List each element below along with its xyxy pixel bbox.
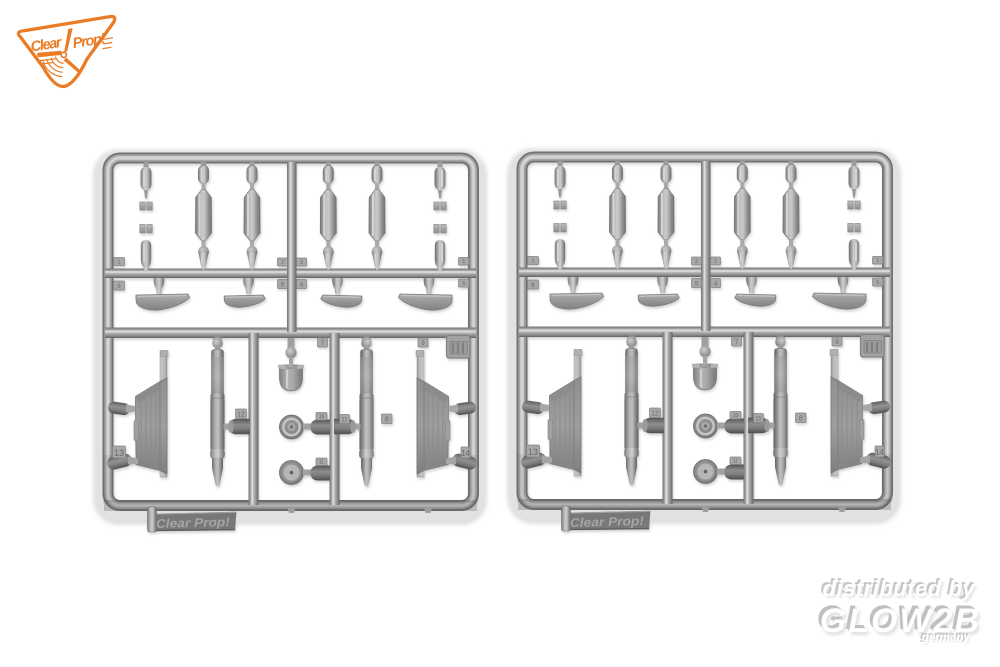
svg-text:germany: germany bbox=[921, 633, 971, 645]
svg-text:11: 11 bbox=[319, 460, 324, 466]
svg-text:14: 14 bbox=[461, 449, 470, 458]
svg-text:3: 3 bbox=[714, 259, 717, 265]
svg-text:distributed by: distributed by bbox=[823, 576, 977, 601]
svg-text:11: 11 bbox=[341, 418, 348, 424]
svg-text:10: 10 bbox=[733, 413, 739, 419]
svg-text:12: 12 bbox=[651, 411, 659, 418]
svg-text:Clear Prop!: Clear Prop! bbox=[570, 514, 644, 530]
svg-text:13: 13 bbox=[528, 447, 538, 457]
svg-text:14: 14 bbox=[875, 448, 884, 457]
svg-text:2: 2 bbox=[281, 260, 284, 266]
svg-text:Clear Prop!: Clear Prop! bbox=[156, 515, 230, 531]
svg-text:11: 11 bbox=[733, 459, 738, 465]
svg-text:Prop!: Prop! bbox=[72, 31, 107, 52]
svg-text:3: 3 bbox=[300, 260, 303, 266]
svg-text:2: 2 bbox=[695, 259, 698, 265]
svg-text:1: 1 bbox=[876, 258, 879, 264]
svg-text:11: 11 bbox=[755, 417, 762, 423]
svg-text:8: 8 bbox=[799, 416, 803, 423]
svg-text:13: 13 bbox=[114, 448, 124, 458]
svg-text:8: 8 bbox=[385, 417, 389, 424]
svg-text:1: 1 bbox=[118, 260, 121, 266]
svg-text:1: 1 bbox=[462, 259, 465, 265]
svg-text:10: 10 bbox=[319, 414, 325, 420]
svg-text:6: 6 bbox=[876, 280, 879, 286]
svg-text:6: 6 bbox=[462, 281, 465, 287]
svg-text:1: 1 bbox=[532, 259, 535, 265]
svg-text:12: 12 bbox=[237, 412, 245, 419]
